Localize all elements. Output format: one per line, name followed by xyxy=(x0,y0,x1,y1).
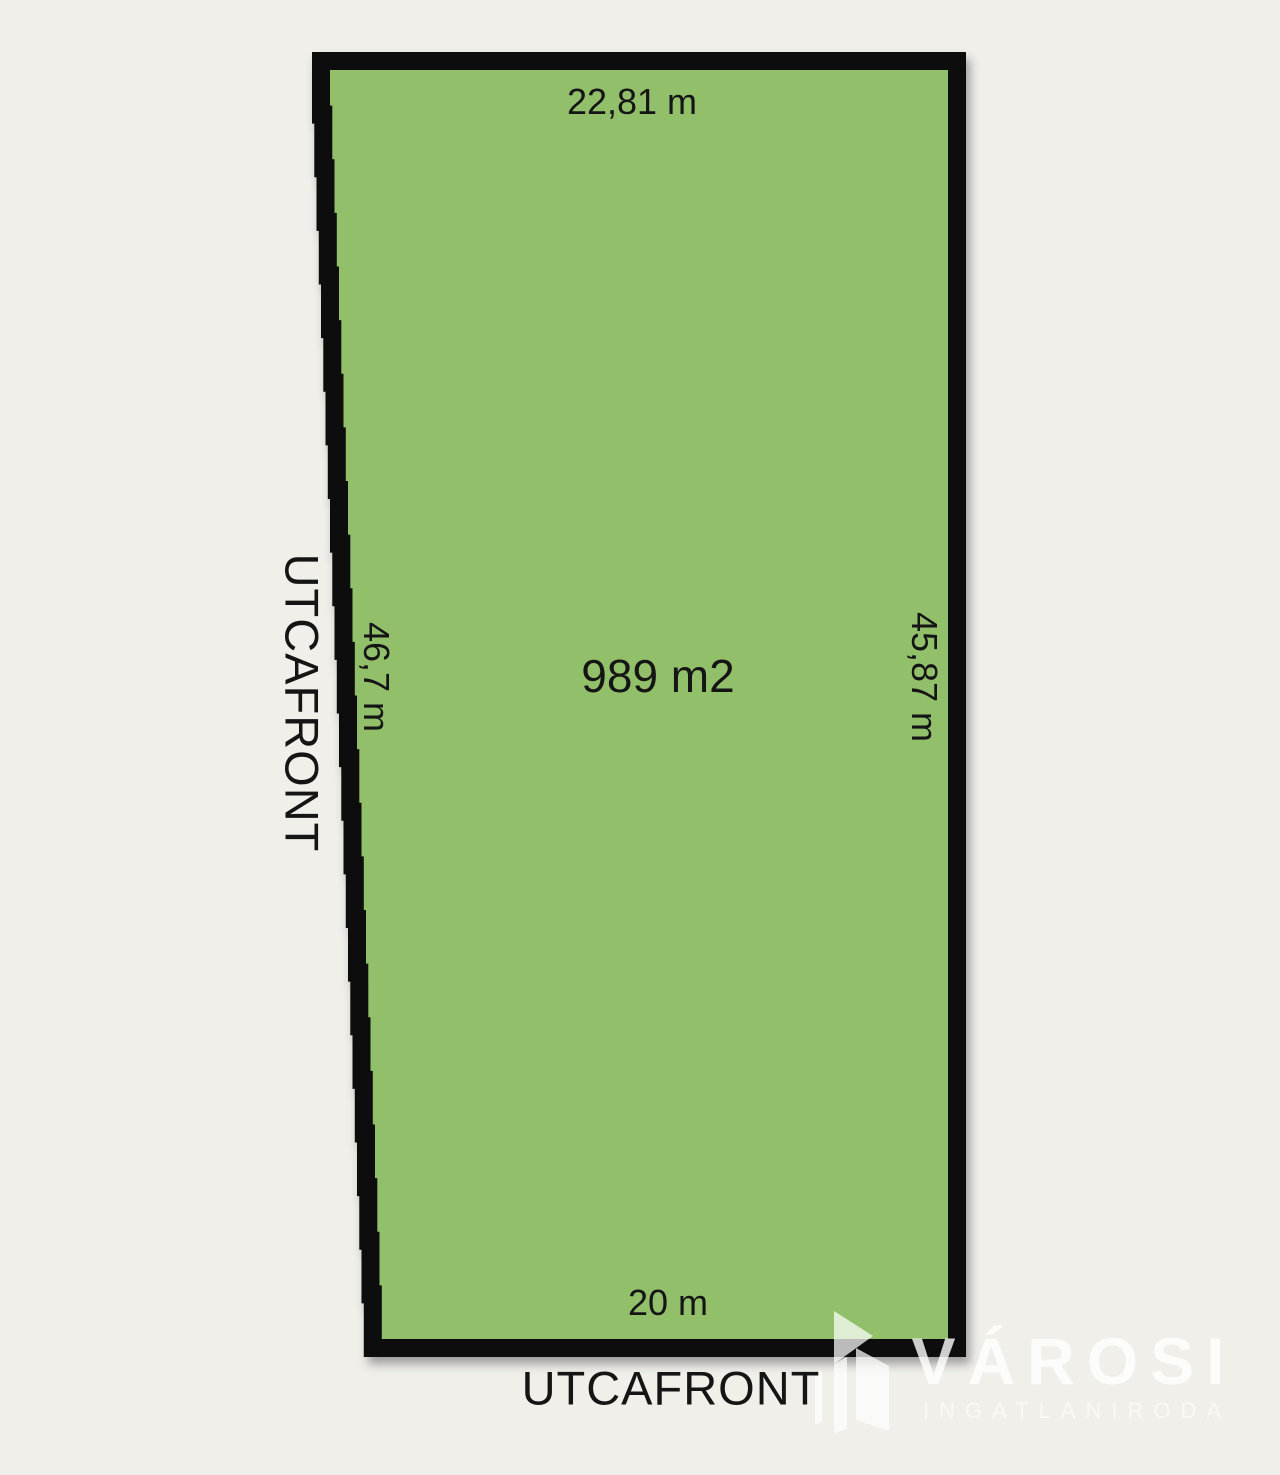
street-front-label-left: UTCAFRONT xyxy=(279,554,326,853)
parcel-area-label: 989 m2 xyxy=(581,653,734,699)
site-plan-drawing xyxy=(0,0,1280,1475)
watermark-subtitle: INGATLANIRODA xyxy=(923,1400,1231,1422)
street-front-label-bottom: UTCAFRONT xyxy=(522,1365,821,1412)
dimension-top: 22,81 m xyxy=(567,84,697,120)
watermark-brand: VÁROSI xyxy=(911,1328,1236,1394)
dimension-left: 46,7 m xyxy=(358,622,394,732)
dimension-bottom: 20 m xyxy=(628,1285,708,1321)
parcel-shape xyxy=(321,61,957,1348)
site-plan-canvas: 22,81 m 46,7 m 45,87 m 20 m 989 m2 UTCAF… xyxy=(0,0,1280,1475)
dimension-right: 45,87 m xyxy=(906,612,942,742)
